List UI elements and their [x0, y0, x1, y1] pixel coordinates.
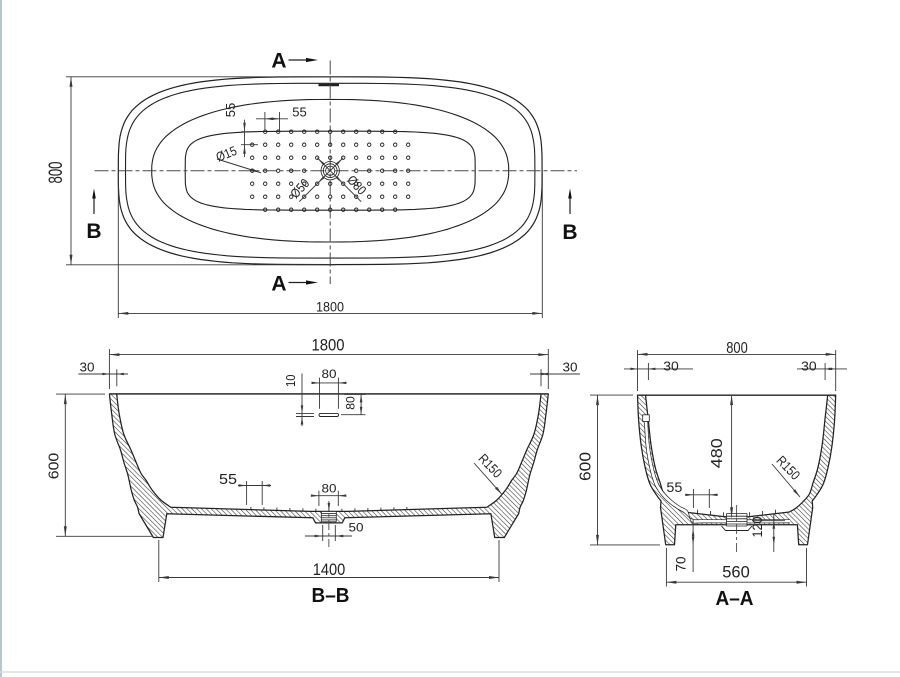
svg-text:30: 30	[80, 361, 95, 375]
svg-text:55: 55	[219, 472, 237, 488]
svg-text:80: 80	[344, 396, 358, 410]
svg-text:1400: 1400	[313, 560, 346, 579]
svg-text:560: 560	[722, 563, 750, 582]
svg-text:80: 80	[322, 367, 337, 381]
svg-text:30: 30	[663, 360, 679, 374]
svg-text:30: 30	[563, 360, 578, 374]
svg-text:1800: 1800	[316, 300, 344, 315]
svg-text:55: 55	[666, 480, 682, 495]
svg-text:800: 800	[46, 162, 67, 184]
svg-text:A: A	[271, 273, 286, 296]
svg-text:600: 600	[578, 452, 595, 481]
svg-text:B: B	[562, 221, 577, 244]
svg-text:A–A: A–A	[716, 587, 754, 610]
svg-text:70: 70	[673, 556, 689, 571]
svg-text:800: 800	[726, 340, 748, 357]
svg-text:B: B	[86, 220, 101, 243]
svg-text:55: 55	[292, 106, 307, 120]
svg-text:A: A	[271, 50, 286, 73]
svg-text:50: 50	[349, 521, 364, 535]
svg-text:120: 120	[750, 517, 765, 538]
svg-text:1800: 1800	[312, 336, 345, 355]
svg-text:80: 80	[322, 482, 337, 496]
svg-text:10: 10	[284, 374, 298, 387]
svg-text:55: 55	[224, 103, 238, 118]
svg-text:B–B: B–B	[312, 584, 350, 607]
svg-text:600: 600	[46, 453, 63, 480]
svg-text:480: 480	[709, 438, 726, 468]
svg-text:30: 30	[801, 360, 817, 374]
